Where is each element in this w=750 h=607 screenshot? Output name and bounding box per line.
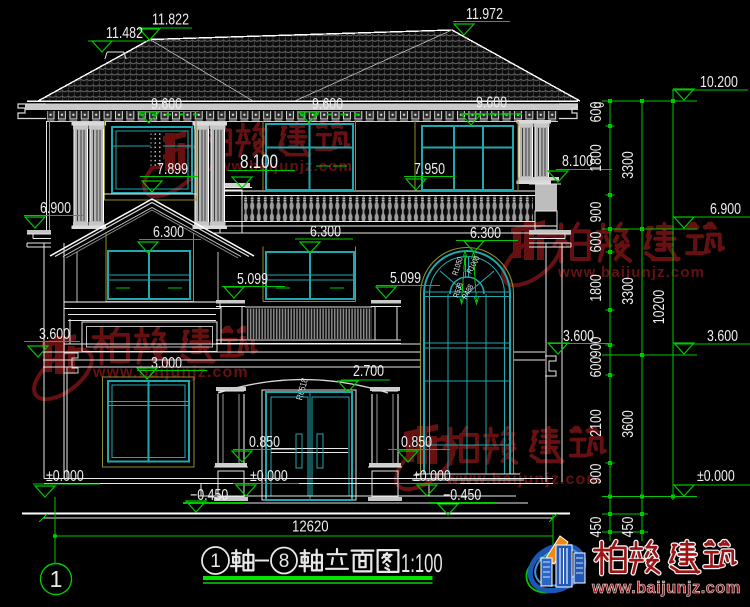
svg-text:5.099: 5.099 — [237, 270, 268, 288]
svg-text:1:100: 1:100 — [401, 548, 443, 578]
svg-text:3300: 3300 — [619, 151, 637, 179]
svg-text:±0.000: ±0.000 — [413, 467, 451, 485]
svg-text:±0.000: ±0.000 — [46, 467, 84, 485]
svg-text:±0.000: ±0.000 — [250, 467, 288, 485]
svg-text:12620: 12620 — [292, 519, 329, 536]
svg-text:www.baijunjz.com: www.baijunjz.com — [591, 579, 741, 597]
svg-text:5.099: 5.099 — [390, 269, 421, 287]
svg-text:−0.450: −0.450 — [443, 486, 481, 504]
svg-text:2100: 2100 — [587, 409, 605, 437]
svg-text:1: 1 — [210, 551, 221, 572]
svg-text:0.850: 0.850 — [249, 433, 280, 451]
svg-text:600: 600 — [587, 101, 605, 122]
svg-text:9.600: 9.600 — [476, 93, 507, 111]
svg-text:11.822: 11.822 — [152, 10, 189, 28]
svg-text:10.200: 10.200 — [700, 73, 738, 91]
svg-text:3600: 3600 — [619, 410, 637, 438]
svg-text:7.950: 7.950 — [414, 160, 445, 178]
svg-text:±0.000: ±0.000 — [697, 467, 735, 485]
svg-text:9.600: 9.600 — [312, 95, 343, 113]
svg-text:7.899: 7.899 — [157, 160, 188, 178]
svg-text:1: 1 — [50, 566, 63, 592]
svg-text:9.600: 9.600 — [151, 95, 182, 113]
svg-text:www.baijunjz.com: www.baijunjz.com — [205, 158, 353, 175]
svg-text:11.482: 11.482 — [106, 24, 143, 42]
svg-text:2.700: 2.700 — [353, 362, 384, 380]
svg-text:1800: 1800 — [587, 144, 605, 172]
svg-text:1800: 1800 — [587, 274, 605, 302]
svg-text:6.300: 6.300 — [470, 224, 501, 242]
svg-text:3.600: 3.600 — [707, 327, 738, 345]
svg-text:6.900: 6.900 — [40, 199, 71, 217]
svg-text:11.972: 11.972 — [466, 5, 503, 23]
svg-text:600: 600 — [587, 356, 605, 377]
svg-text:3300: 3300 — [619, 277, 637, 305]
svg-text:8.100: 8.100 — [240, 150, 278, 172]
svg-text:0.850: 0.850 — [401, 433, 432, 451]
svg-text:600: 600 — [587, 231, 605, 252]
svg-text:6.300: 6.300 — [153, 223, 184, 241]
svg-text:450: 450 — [619, 516, 637, 537]
svg-text:900: 900 — [587, 336, 605, 357]
svg-text:900: 900 — [587, 201, 605, 222]
svg-text:8: 8 — [279, 551, 290, 572]
svg-text:450: 450 — [587, 516, 605, 537]
svg-text:900: 900 — [587, 463, 605, 484]
svg-text:6.300: 6.300 — [310, 222, 341, 240]
svg-text:10200: 10200 — [650, 290, 668, 325]
svg-text:6.900: 6.900 — [710, 200, 741, 218]
svg-text:3.600: 3.600 — [39, 325, 70, 343]
